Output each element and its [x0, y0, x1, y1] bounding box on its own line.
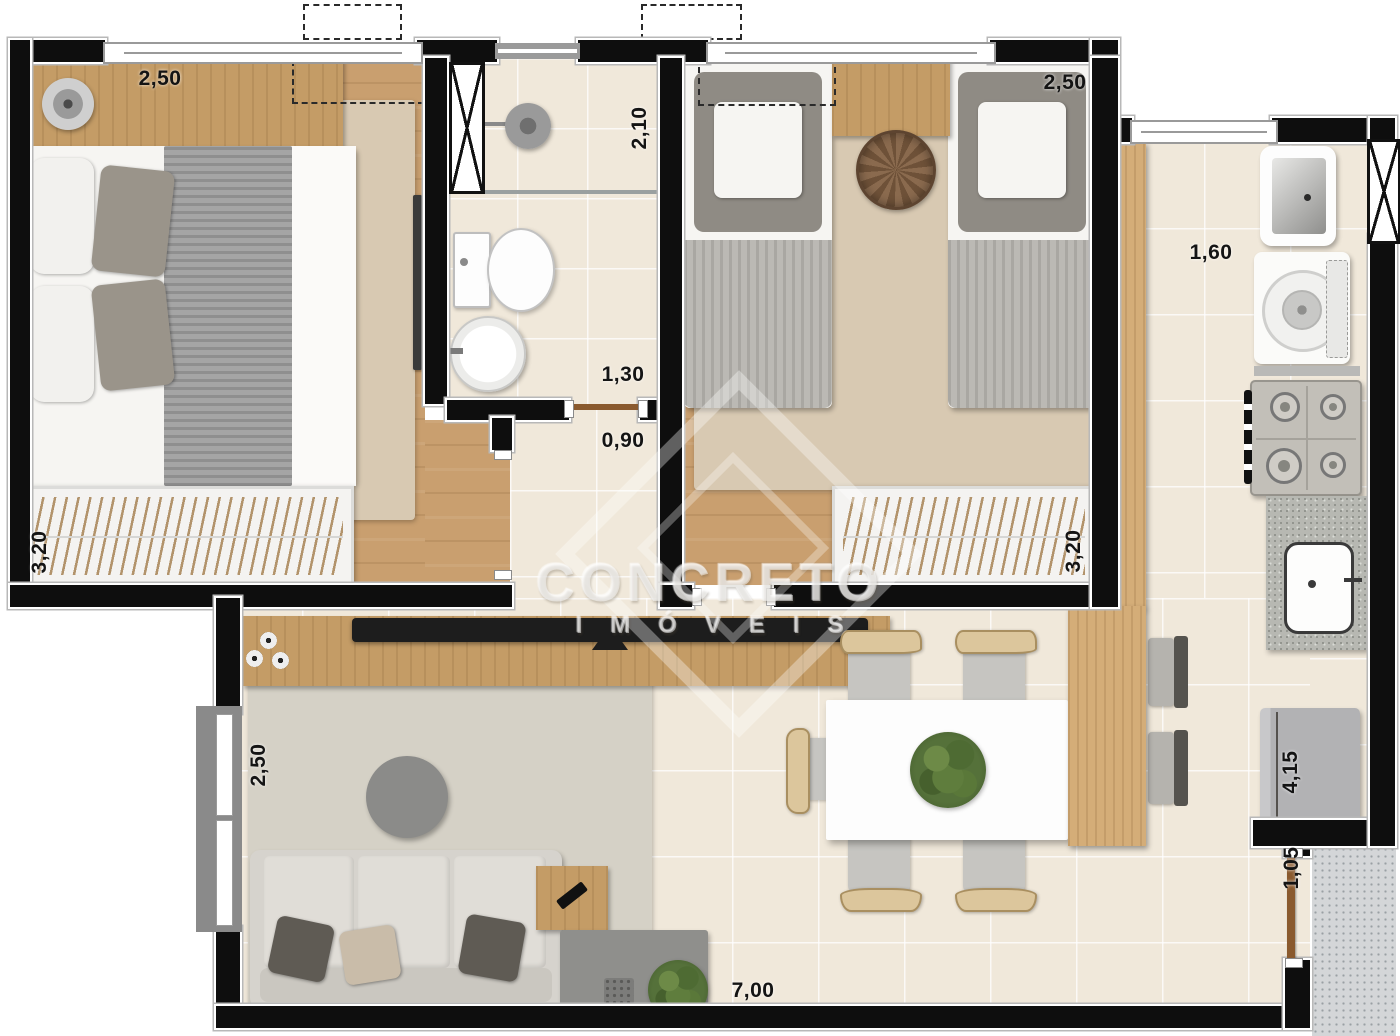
remote-control — [556, 881, 588, 909]
toilet-tank — [453, 232, 491, 308]
pillow — [457, 913, 527, 983]
pillow — [978, 102, 1066, 198]
wall-segment — [1285, 960, 1310, 1028]
pillow — [91, 278, 176, 391]
dim-bathroom-width: 1,30 — [588, 364, 658, 388]
toilet-bowl — [487, 228, 555, 312]
dining-chair — [955, 630, 1037, 654]
wall-segment — [1092, 58, 1118, 607]
wall-segment — [10, 40, 30, 607]
service-window-icon — [1367, 139, 1400, 244]
bar-stool — [1148, 636, 1192, 708]
trivet-pattern — [604, 978, 634, 1004]
dim-kitchen-length: 4,15 — [1280, 742, 1302, 802]
washing-machine — [1254, 252, 1350, 364]
pillow — [714, 102, 802, 198]
stove-burner — [1270, 392, 1300, 422]
stove-burner — [1266, 448, 1302, 484]
single-bed-right — [948, 58, 1096, 408]
washer-agitator — [1282, 290, 1322, 330]
plant-centerpiece — [910, 732, 986, 808]
pillow — [267, 915, 336, 984]
dim-bathroom-length: 2,10 — [629, 98, 651, 158]
sofa — [250, 850, 562, 1008]
dining-chair-seat — [963, 834, 1025, 892]
door-jamb — [766, 588, 776, 606]
wall-segment — [216, 1006, 1310, 1028]
side-table — [536, 866, 608, 930]
stove-burner — [1320, 394, 1346, 420]
wall-segment — [425, 58, 447, 404]
dining-chair-seat — [848, 834, 910, 892]
tv — [352, 618, 868, 642]
basket — [856, 130, 936, 210]
kitchen-sink — [1284, 542, 1354, 634]
wall-segment — [578, 40, 708, 62]
pillow — [338, 924, 402, 986]
vent-shaft-icon — [449, 62, 485, 194]
dim-kitchen-width: 1,60 — [1176, 242, 1246, 266]
wall-segment — [447, 400, 569, 420]
kitchen-tap — [1344, 578, 1362, 582]
dining-chair — [840, 888, 922, 912]
pillow — [30, 286, 94, 402]
bathroom-door — [572, 404, 638, 410]
shower-head — [505, 103, 551, 149]
sink-tap — [449, 348, 463, 354]
condenser-outline — [303, 4, 402, 40]
toilet-flush-button — [460, 258, 468, 266]
refrigerator — [1260, 708, 1360, 824]
wall-segment — [492, 418, 512, 450]
wall-segment — [216, 598, 240, 712]
bar-counter — [1068, 606, 1146, 846]
window-pane — [216, 714, 233, 816]
floor-plan: 2,50 3,20 2,10 1,30 0,90 2,50 3,20 1,60 … — [0, 0, 1400, 1036]
tank-basin — [1272, 158, 1326, 234]
wall-segment — [10, 585, 512, 607]
bed-blanket — [164, 146, 292, 486]
bed-blanket — [684, 240, 832, 408]
wall-tv — [413, 195, 422, 370]
washer-control-panel — [1326, 260, 1348, 358]
dining-chair — [955, 888, 1037, 912]
pillow — [30, 158, 94, 274]
oven-handle — [1244, 390, 1252, 484]
counter-ledge — [1254, 366, 1360, 376]
stove — [1250, 380, 1362, 496]
condenser-outline — [641, 4, 742, 40]
bar-counter-upper — [1116, 142, 1146, 608]
single-bed-left — [684, 58, 832, 408]
wall-segment — [774, 585, 1118, 607]
balcony-sliding-window — [196, 706, 242, 932]
ac-unit-outline — [292, 60, 424, 104]
coffee-table — [366, 756, 448, 838]
dim-bedroom2-length: 3,20 — [1063, 521, 1085, 581]
dining-chair — [786, 728, 810, 814]
door-jamb — [638, 400, 648, 418]
dim-bedroom1-length: 3,20 — [29, 522, 51, 582]
dim-living-length: 7,00 — [718, 980, 788, 1004]
nightstand — [832, 56, 950, 136]
wall-segment — [660, 585, 692, 607]
window-bathroom — [495, 43, 580, 59]
door-jamb — [564, 400, 574, 418]
stove-grate-divider — [1256, 438, 1356, 440]
dim-entry-width: 1,05 — [1281, 838, 1303, 898]
door-jamb — [692, 588, 702, 606]
dining-chair-seat — [848, 648, 910, 706]
wall-segment — [660, 58, 682, 607]
double-bed — [22, 146, 356, 486]
dimension-line — [1276, 712, 1278, 820]
dining-chair — [840, 630, 922, 654]
dining-chair-seat — [963, 648, 1025, 706]
window-kitchen — [1130, 120, 1278, 144]
wardrobe-bedroom1 — [22, 486, 354, 586]
window-pane — [216, 820, 233, 926]
stove-burner — [1320, 452, 1346, 478]
pillow — [91, 164, 176, 277]
hanger-rail — [843, 497, 1085, 575]
door-jamb — [494, 450, 512, 460]
hanger-rail — [33, 497, 343, 575]
bed-sheet — [292, 146, 356, 486]
dim-living-width: 2,50 — [248, 735, 270, 795]
bathroom-sink — [450, 316, 526, 392]
window-bedroom2 — [706, 42, 996, 64]
laundry-tank — [1260, 146, 1336, 246]
granite-countertop — [1266, 496, 1368, 650]
bar-stool — [1148, 730, 1192, 806]
tank-drain — [1304, 194, 1311, 201]
bedside-decor-icon — [42, 78, 94, 130]
wall-segment — [1370, 236, 1395, 846]
dim-bedroom1-width: 2,50 — [125, 68, 195, 92]
wardrobe-bedroom2 — [832, 486, 1096, 586]
speaker-set-icon — [246, 632, 296, 680]
dim-bedroom2-width: 2,50 — [1030, 72, 1100, 96]
bed-blanket — [948, 240, 1096, 408]
door-jamb — [1285, 958, 1303, 968]
exterior-landing — [1312, 846, 1396, 1036]
door-jamb — [494, 570, 512, 580]
sink-drain — [1308, 580, 1316, 588]
dim-hall-width: 0,90 — [588, 430, 658, 454]
window-bedroom1 — [103, 42, 423, 64]
